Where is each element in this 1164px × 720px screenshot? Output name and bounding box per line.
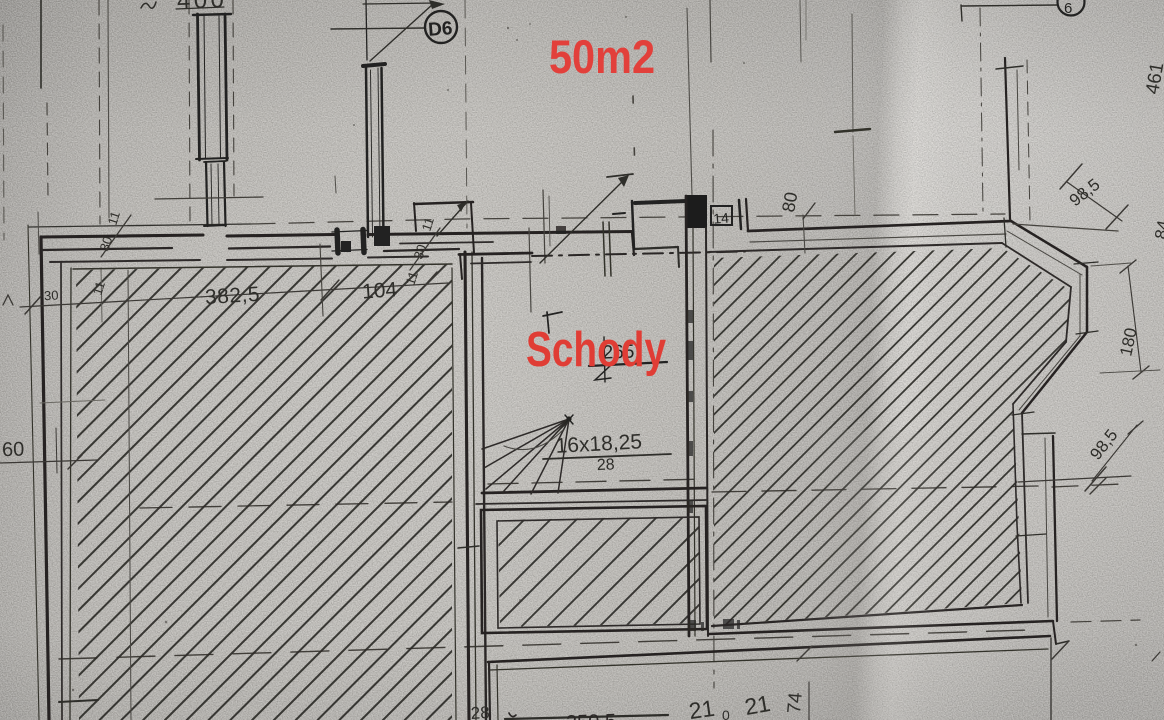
svg-text:14: 14 xyxy=(713,209,730,226)
svg-text:104: 104 xyxy=(361,278,398,303)
svg-text:D6: D6 xyxy=(427,18,453,41)
svg-text:Schody: Schody xyxy=(526,323,666,377)
svg-text:50m2: 50m2 xyxy=(549,30,655,83)
svg-text:30: 30 xyxy=(44,288,59,304)
svg-text:0: 0 xyxy=(722,707,730,720)
svg-text:382,5: 382,5 xyxy=(204,283,260,309)
svg-text:250,5: 250,5 xyxy=(566,710,617,720)
svg-text:16x18,25: 16x18,25 xyxy=(555,430,643,457)
svg-text:6: 6 xyxy=(1064,0,1072,17)
svg-text:80: 80 xyxy=(778,190,801,213)
svg-text:84: 84 xyxy=(1151,219,1164,241)
svg-text:21: 21 xyxy=(743,690,773,720)
svg-text:28: 28 xyxy=(597,456,615,474)
svg-text:28: 28 xyxy=(470,703,490,720)
svg-text:21: 21 xyxy=(687,695,716,720)
svg-text:60: 60 xyxy=(2,439,25,462)
